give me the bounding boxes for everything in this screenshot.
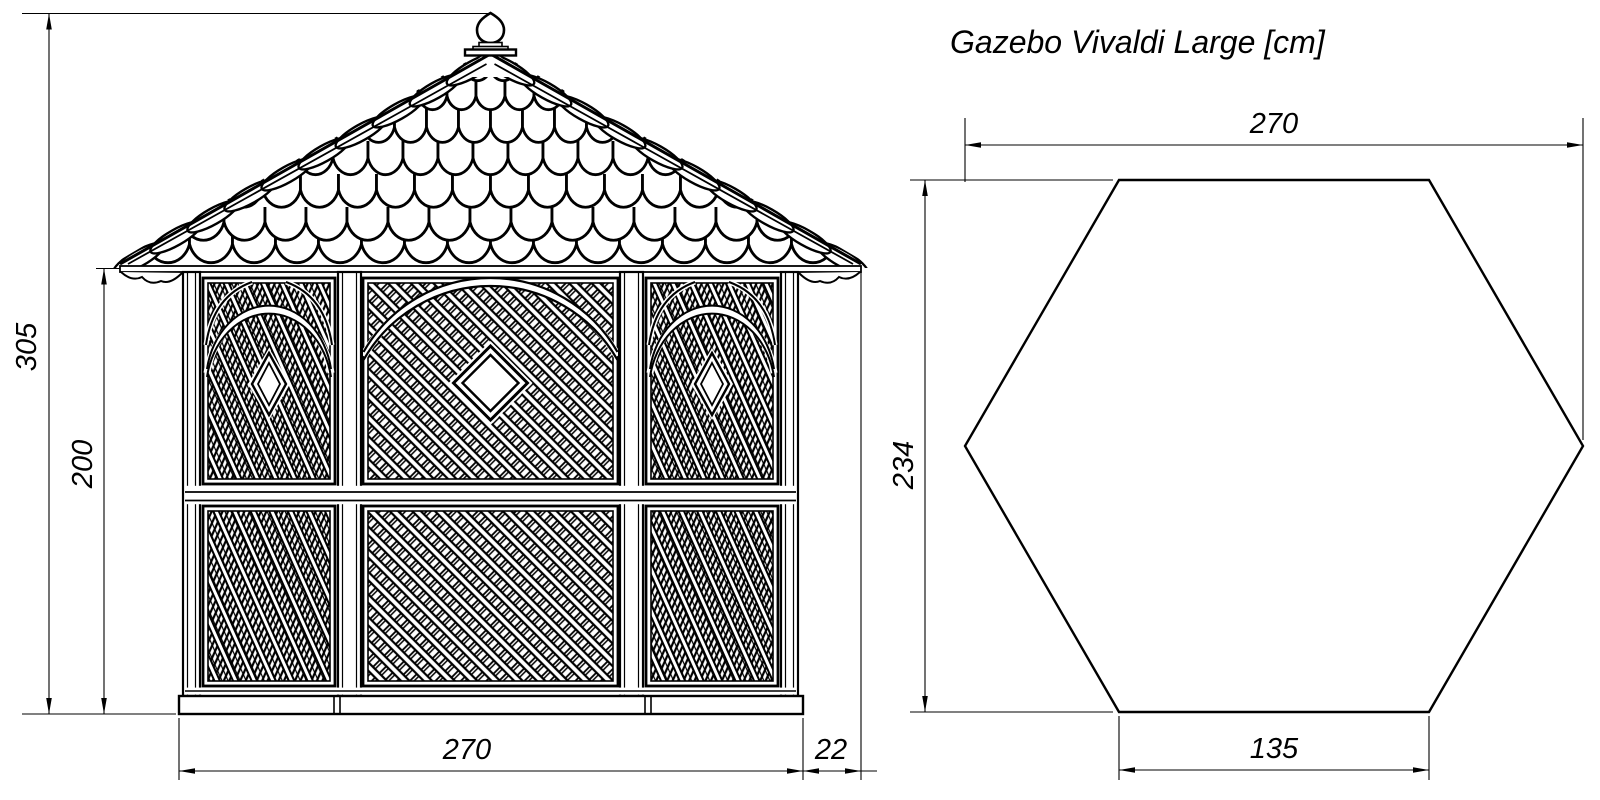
svg-text:270: 270 <box>442 734 491 766</box>
svg-text:22: 22 <box>814 734 847 766</box>
svg-text:234: 234 <box>888 441 920 490</box>
svg-text:Gazebo Vivaldi Large [cm]: Gazebo Vivaldi Large [cm] <box>950 24 1326 60</box>
svg-text:270: 270 <box>1249 108 1298 140</box>
svg-text:135: 135 <box>1250 733 1299 765</box>
svg-text:305: 305 <box>11 322 43 371</box>
svg-text:200: 200 <box>67 440 99 489</box>
